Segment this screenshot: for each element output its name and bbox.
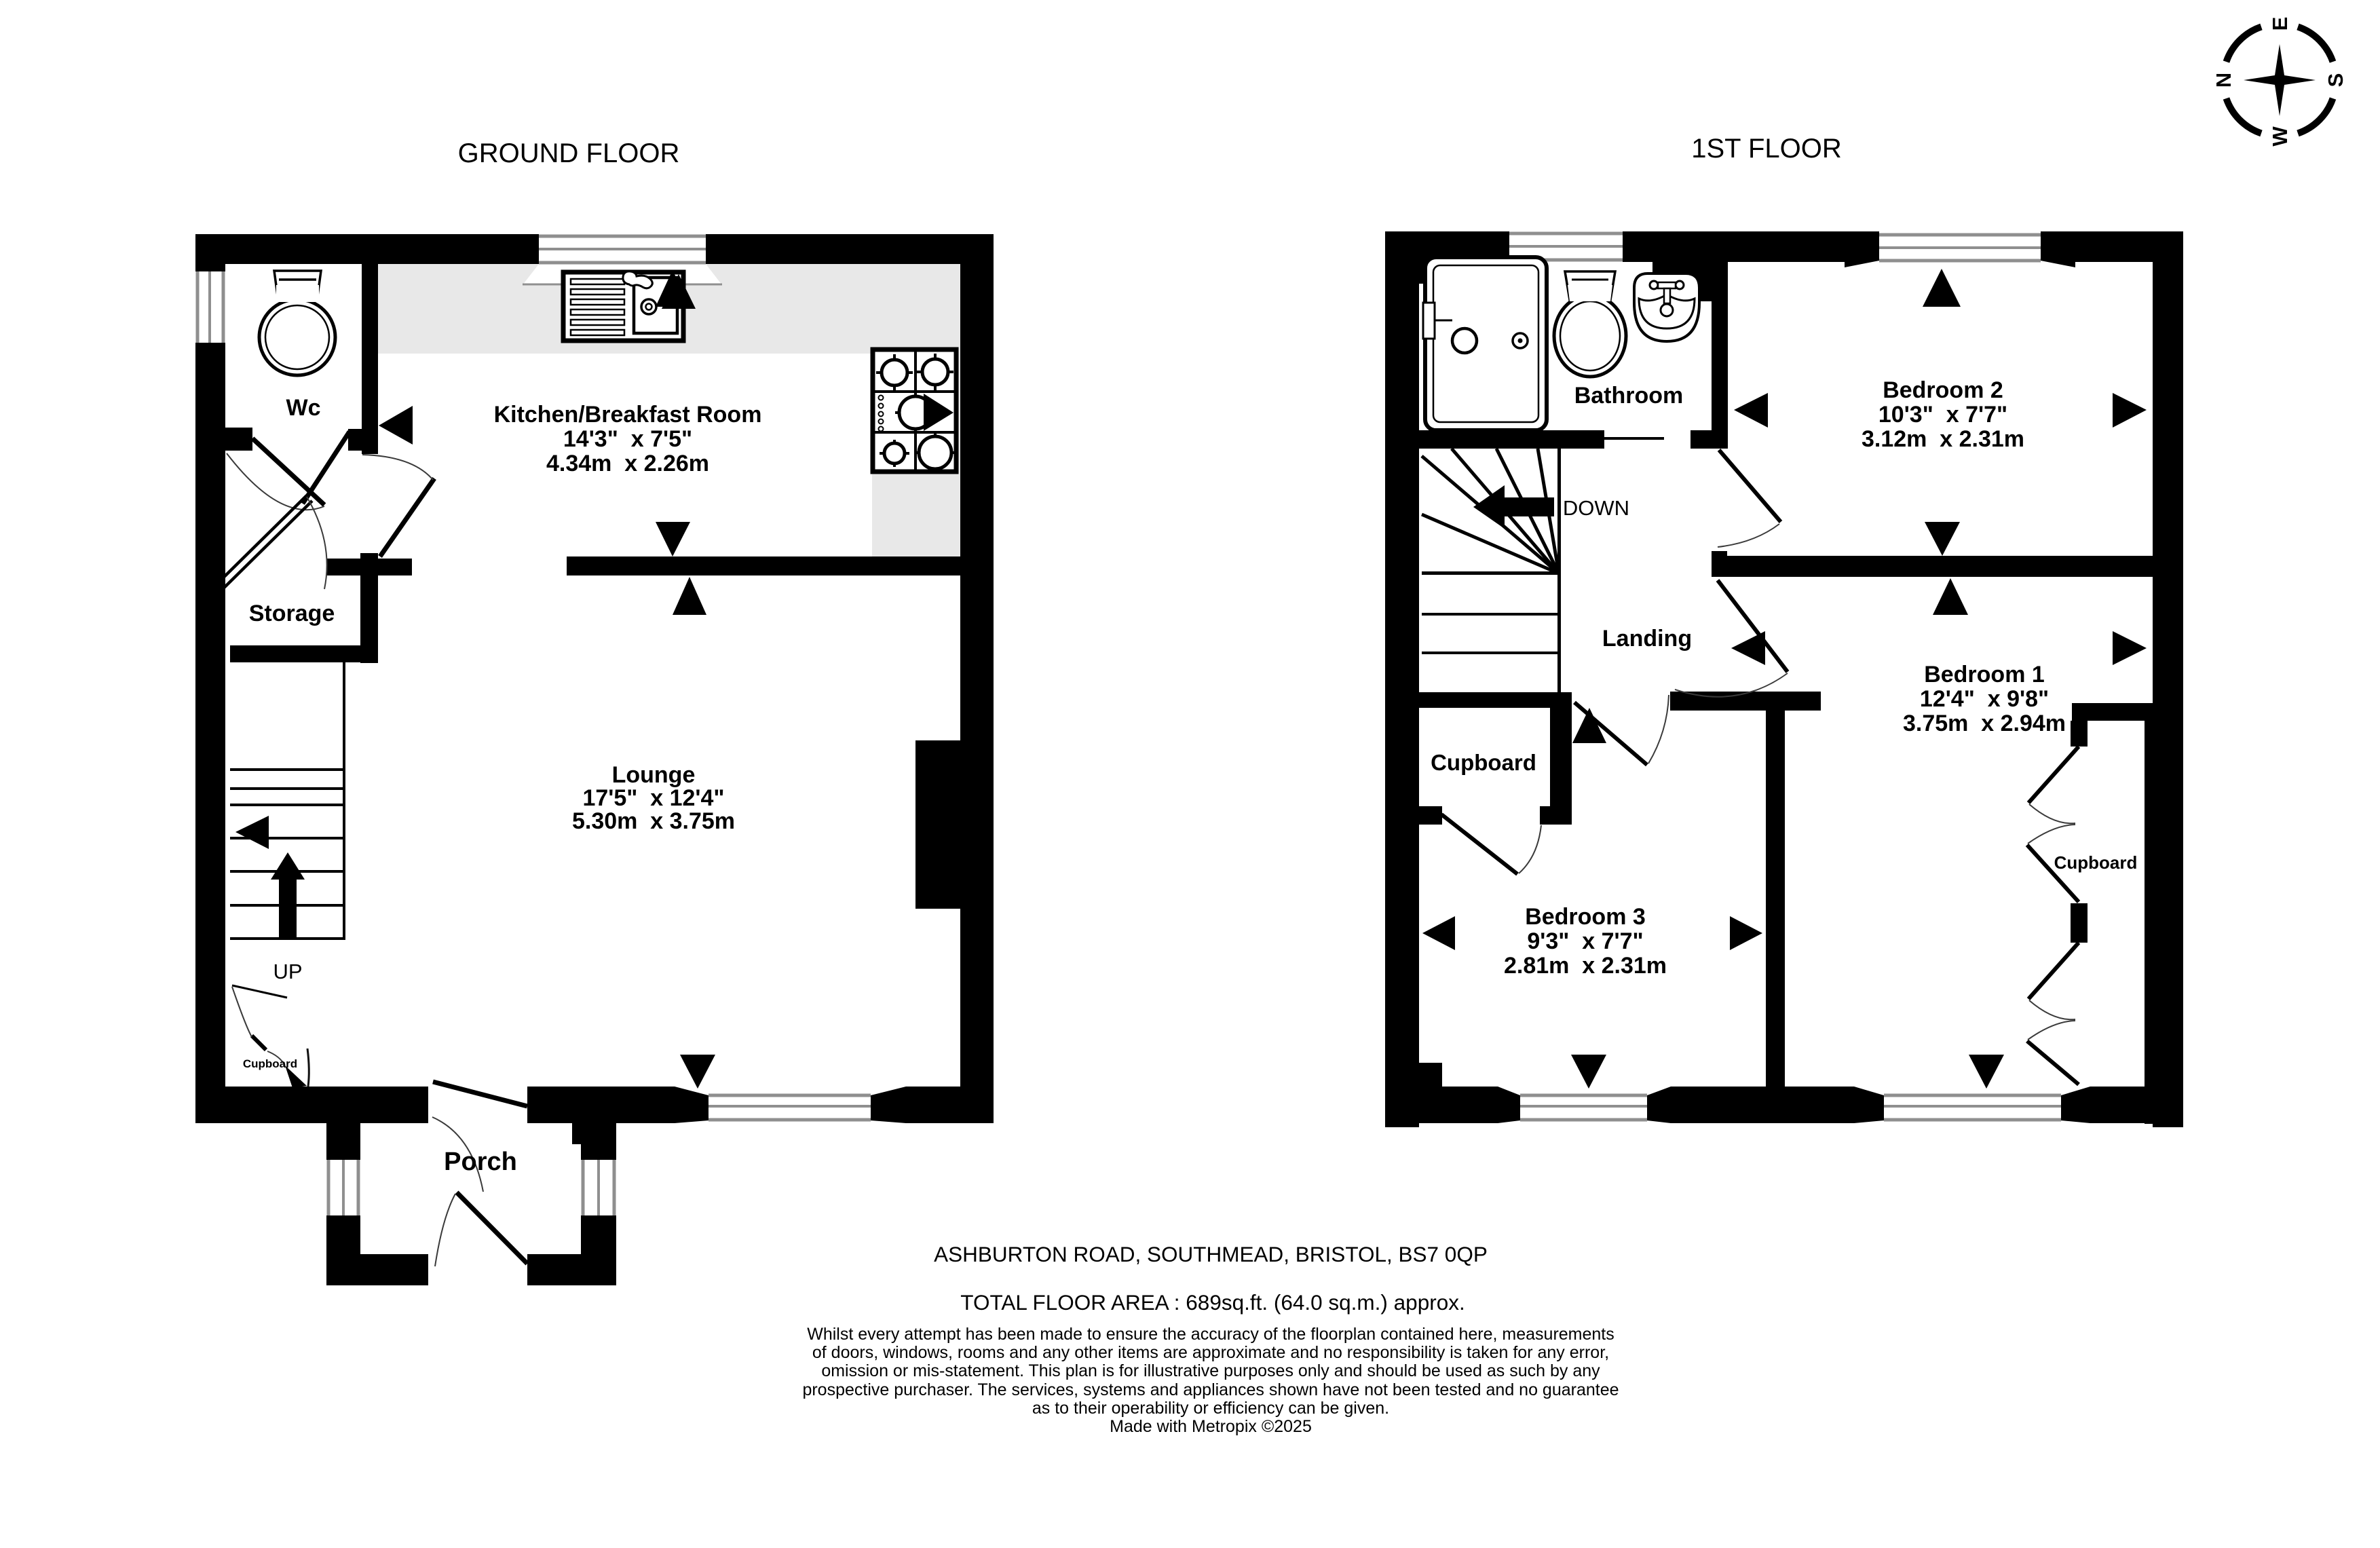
svg-text:prospective purchaser. The ser: prospective purchaser. The services, sys… bbox=[802, 1380, 1619, 1399]
svg-text:GROUND FLOOR: GROUND FLOOR bbox=[458, 138, 680, 168]
svg-text:1ST FLOOR: 1ST FLOOR bbox=[1691, 134, 1842, 164]
svg-text:S: S bbox=[2324, 73, 2347, 88]
svg-text:Bedroom 1: Bedroom 1 bbox=[1924, 662, 2045, 687]
svg-text:Made with Metropix ©2025: Made with Metropix ©2025 bbox=[1110, 1417, 1312, 1436]
svg-text:Bedroom 3: Bedroom 3 bbox=[1525, 904, 1646, 930]
svg-text:TOTAL FLOOR AREA : 689sq.ft. (: TOTAL FLOOR AREA : 689sq.ft. (64.0 sq.m.… bbox=[960, 1290, 1465, 1315]
svg-text:Wc: Wc bbox=[286, 395, 321, 421]
svg-text:9'3" x 7'7": 9'3" x 7'7" bbox=[1527, 928, 1643, 954]
svg-text:N: N bbox=[2212, 73, 2235, 88]
svg-text:as to their operability or eff: as to their operability or efficiency ca… bbox=[1032, 1399, 1389, 1418]
svg-text:Kitchen/Breakfast Room: Kitchen/Breakfast Room bbox=[494, 402, 762, 428]
svg-text:Storage: Storage bbox=[249, 601, 335, 626]
svg-text:Bathroom: Bathroom bbox=[1574, 383, 1684, 409]
svg-text:UP: UP bbox=[273, 960, 302, 983]
svg-text:Cupboard: Cupboard bbox=[243, 1057, 297, 1070]
svg-text:Cupboard: Cupboard bbox=[1431, 750, 1536, 775]
svg-text:Lounge: Lounge bbox=[612, 762, 696, 788]
svg-text:Landing: Landing bbox=[1602, 626, 1692, 652]
svg-text:10'3" x 7'7": 10'3" x 7'7" bbox=[1878, 402, 2007, 428]
svg-text:3.75m x 2.94m: 3.75m x 2.94m bbox=[1903, 711, 2066, 736]
svg-text:14'3" x 7'5": 14'3" x 7'5" bbox=[563, 426, 692, 452]
svg-text:3.12m x 2.31m: 3.12m x 2.31m bbox=[1862, 426, 2024, 452]
svg-text:2.81m x 2.31m: 2.81m x 2.31m bbox=[1504, 953, 1667, 979]
svg-text:Cupboard: Cupboard bbox=[2054, 852, 2138, 873]
svg-text:ASHBURTON ROAD, SOUTHMEAD, BRI: ASHBURTON ROAD, SOUTHMEAD, BRISTOL, BS7 … bbox=[934, 1242, 1488, 1266]
svg-text:12'4" x 9'8": 12'4" x 9'8" bbox=[1920, 686, 2049, 712]
svg-text:Porch: Porch bbox=[444, 1148, 517, 1176]
svg-text:5.30m x 3.75m: 5.30m x 3.75m bbox=[572, 808, 735, 834]
svg-text:omission or mis-statement. Thi: omission or mis-statement. This plan is … bbox=[821, 1361, 1600, 1380]
svg-text:Whilst every attempt has been: Whilst every attempt has been made to en… bbox=[807, 1325, 1614, 1344]
svg-text:DOWN: DOWN bbox=[1563, 496, 1629, 520]
svg-text:E: E bbox=[2268, 17, 2292, 31]
svg-text:of doors, windows, rooms and a: of doors, windows, rooms and any other i… bbox=[812, 1343, 1609, 1362]
svg-text:Bedroom 2: Bedroom 2 bbox=[1883, 377, 2003, 403]
svg-text:4.34m x 2.26m: 4.34m x 2.26m bbox=[546, 451, 709, 476]
svg-text:17'5" x 12'4": 17'5" x 12'4" bbox=[582, 785, 724, 811]
svg-text:W: W bbox=[2268, 126, 2292, 147]
